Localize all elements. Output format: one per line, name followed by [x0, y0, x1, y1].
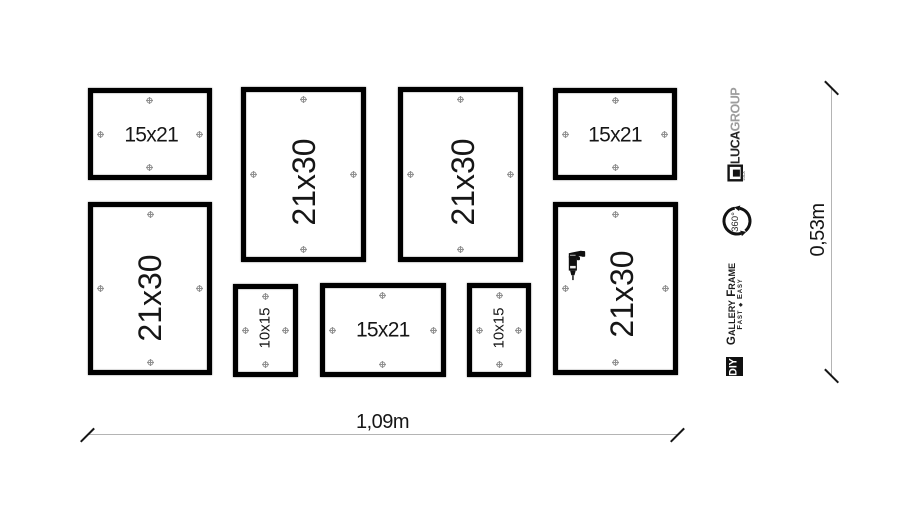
svg-text:LUCA: LUCA: [742, 170, 746, 180]
